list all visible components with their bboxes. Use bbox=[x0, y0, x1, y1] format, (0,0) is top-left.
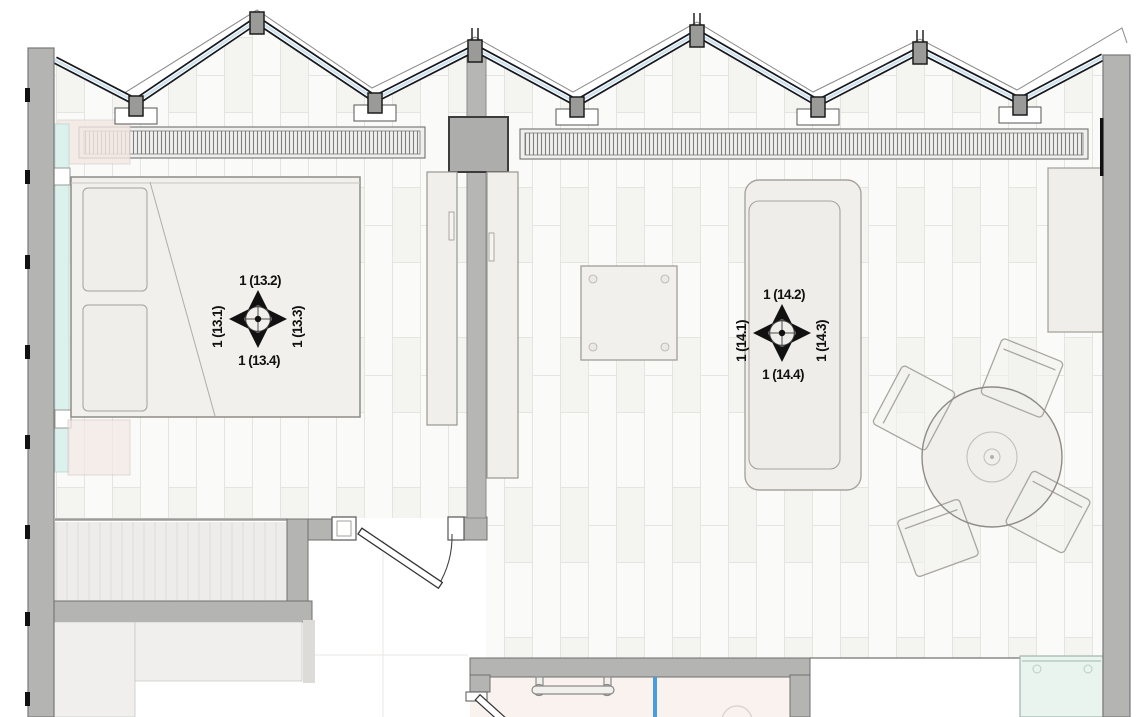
pillow bbox=[83, 188, 147, 291]
door-jamb bbox=[332, 517, 356, 540]
wall-remnant bbox=[303, 620, 315, 683]
bed bbox=[71, 177, 360, 417]
wardrobe-panel-right bbox=[487, 172, 518, 478]
bathroom-wall bbox=[470, 658, 810, 677]
marker-label: 1 (13.1) bbox=[210, 306, 225, 348]
radiator-grille-left bbox=[79, 127, 425, 158]
curtain-holder bbox=[53, 168, 70, 185]
left-wall bbox=[25, 48, 54, 717]
shower-enclosure bbox=[1020, 656, 1103, 717]
side-table bbox=[581, 266, 677, 360]
marker-label: 1 (13.4) bbox=[238, 353, 280, 368]
marker-label: 1 (14.4) bbox=[762, 367, 804, 382]
marker-label: 1 (14.3) bbox=[814, 320, 829, 362]
right-wall bbox=[1100, 55, 1130, 717]
bathroom bbox=[466, 658, 810, 717]
bathroom-wall bbox=[790, 675, 810, 717]
marker-label: 1 (13.3) bbox=[290, 306, 305, 348]
nightstand bbox=[68, 420, 130, 475]
radiator-grille-right bbox=[520, 129, 1088, 159]
column-block bbox=[449, 117, 508, 172]
wall-cabinet bbox=[1048, 168, 1103, 332]
marker-label: 1 (14.2) bbox=[763, 287, 805, 302]
bathroom-wall bbox=[470, 675, 490, 692]
floor-plan: 1 (13.2) 1 (13.4) 1 (13.1) 1 (13.3) 1 (1… bbox=[0, 0, 1143, 717]
bathroom-floor bbox=[470, 677, 793, 717]
shower-divider bbox=[653, 677, 657, 717]
pillow bbox=[83, 305, 147, 411]
marker-label: 1 (13.2) bbox=[239, 273, 281, 288]
closet bbox=[55, 520, 287, 603]
wardrobe-panel-left bbox=[427, 172, 457, 425]
marker-label: 1 (14.1) bbox=[734, 320, 749, 362]
wall-marker bbox=[1100, 118, 1104, 176]
door-jamb bbox=[448, 517, 464, 540]
